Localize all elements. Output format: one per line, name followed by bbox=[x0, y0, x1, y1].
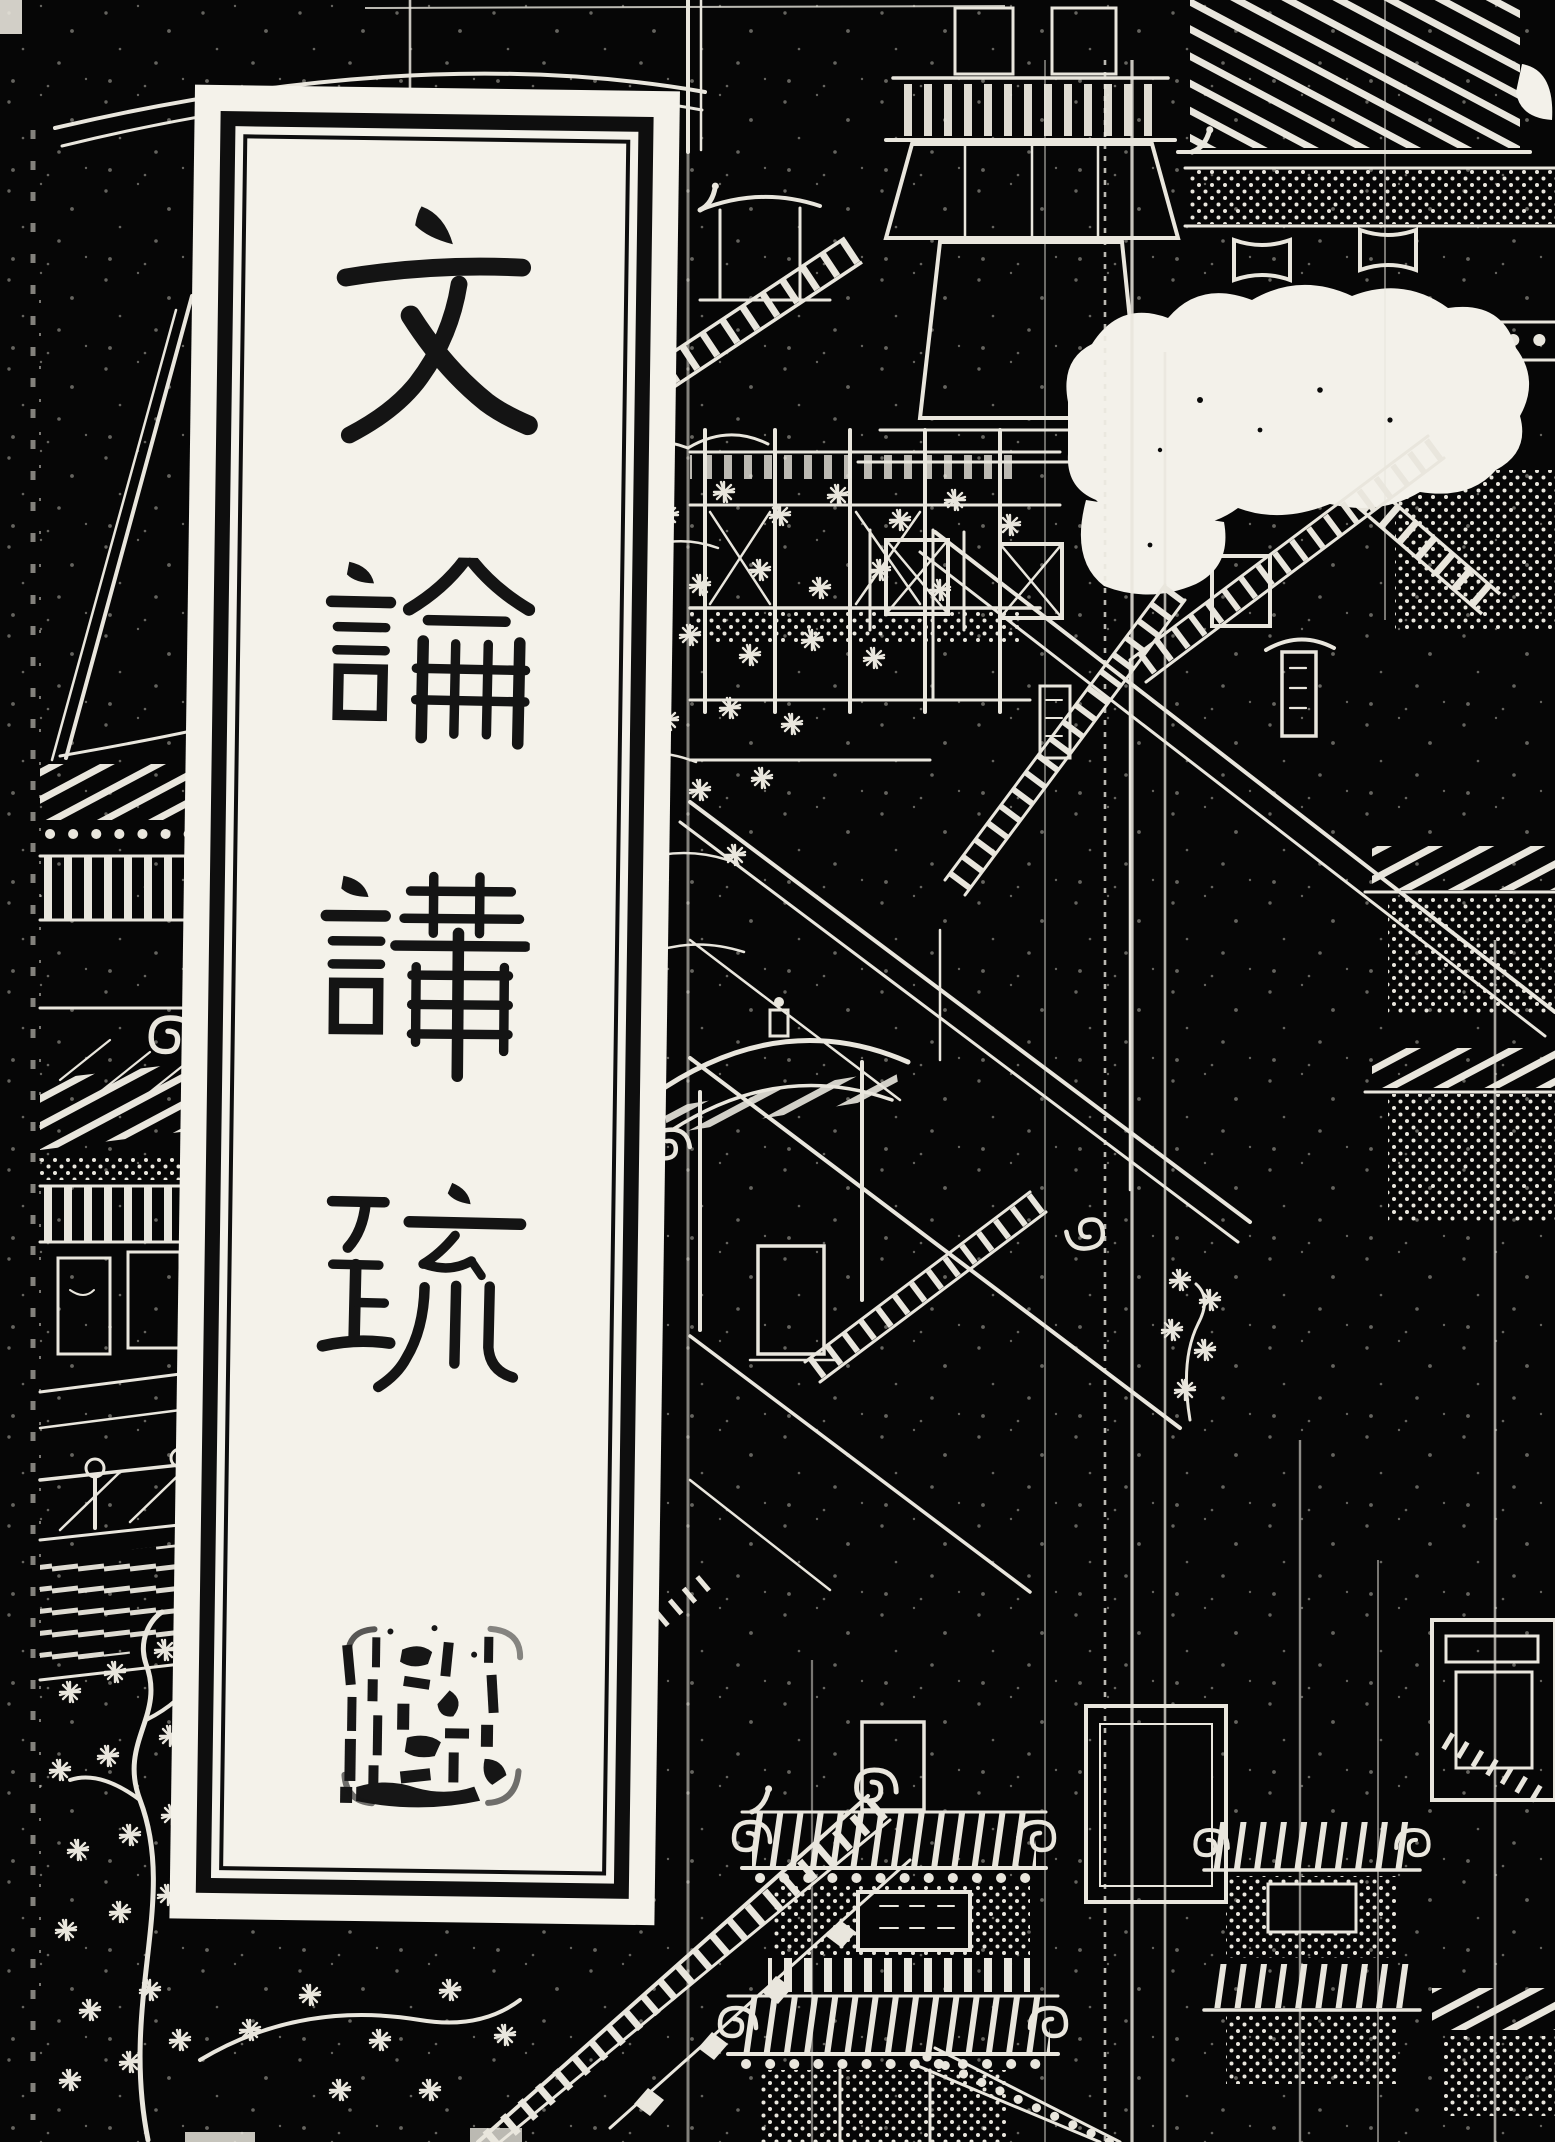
title-character-3: 講 bbox=[318, 869, 530, 1113]
calligraphy-lun bbox=[321, 555, 536, 801]
publisher-seal bbox=[336, 1619, 529, 1812]
title-character-1: 文 bbox=[328, 202, 539, 445]
title-character-4: 疏 bbox=[312, 1180, 527, 1427]
bottom-right-pavilion bbox=[1195, 1822, 1428, 2084]
book-cover: 文 論 bbox=[0, 0, 1555, 2142]
title-character-2: 論 bbox=[321, 555, 536, 801]
calligraphy-jiang bbox=[318, 869, 530, 1113]
calligraphy-shu bbox=[312, 1180, 527, 1427]
title-label: 文 論 bbox=[169, 85, 680, 1926]
title-label-content: 文 論 bbox=[223, 138, 626, 1871]
seal-impression bbox=[336, 1619, 529, 1812]
calligraphy-wen bbox=[328, 202, 539, 445]
